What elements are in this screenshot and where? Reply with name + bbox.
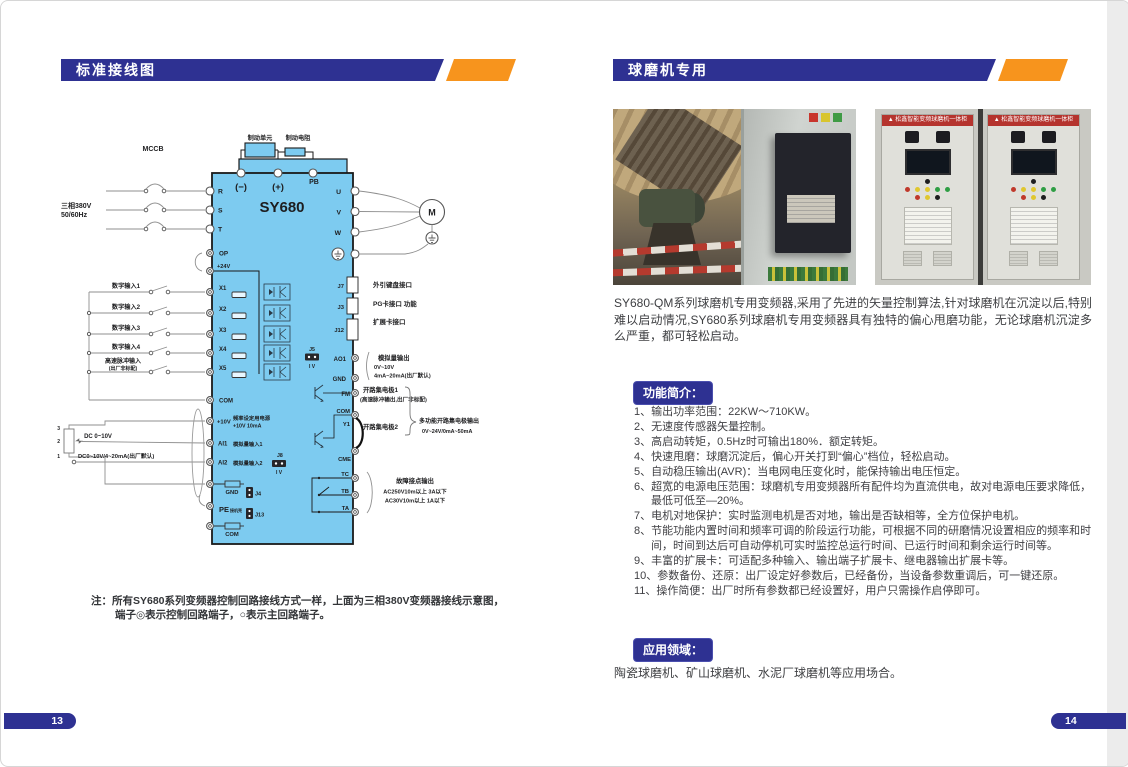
right-section-header: 球磨机专用 <box>613 59 1064 81</box>
ai2-source-label: DC0~10V/4~20mA(出厂默认) <box>78 452 154 460</box>
freq-power-spec: +10V 10mA <box>233 424 262 430</box>
note-line-2: 端子◎表示控制回路端子，○表示主回路端子。 <box>115 609 330 621</box>
support-pole <box>978 109 983 285</box>
feature-item: 5、自动稳压输出(AVR)：当电网电压变化时，能保持输出电压恒定。 <box>634 465 1094 480</box>
feature-item: 11、操作简便：出厂时所有参数都已经设置好，用户只需操作启停即可。 <box>634 584 1094 599</box>
digital-input-4-label: 数字输入4 <box>112 343 141 351</box>
feature-item: 6、超宽的电源电压范围：球磨机专用变频器所有配件均为直流供电，故对电源电压要求降… <box>634 480 1094 510</box>
terminal-label: S <box>218 208 223 215</box>
terminal-label: TC <box>341 472 350 478</box>
supply-frequency-label: 50/60Hz <box>61 212 88 219</box>
safety-railing <box>613 265 749 277</box>
wiring-bundle <box>768 267 848 281</box>
analog-input-1-label: 模拟量输入1 <box>233 440 262 448</box>
digital-input-3-label: 数字输入3 <box>112 324 141 332</box>
panel-meters <box>882 126 973 143</box>
terminal-label: +24V <box>217 264 230 270</box>
pe-note: 接机壳 <box>230 507 242 513</box>
feature-item: 8、节能功能内置时间和频率可调的阶段运行功能，可根据不同的研磨情况设置相应的频率… <box>634 524 1094 554</box>
analog-output-range2: 4mA~20mA(出厂默认) <box>374 372 431 380</box>
pb-terminal: PB <box>309 179 319 186</box>
fault-output-spec1: AC250V10m以上 3A以下 <box>383 488 447 496</box>
right-section-title-bar: 球磨机专用 <box>613 59 996 81</box>
vent-grilles <box>988 245 1079 266</box>
terminal-label: X3 <box>219 328 227 334</box>
terminal-label: R <box>218 189 223 196</box>
left-section-header: 标准接线图 <box>61 59 512 81</box>
pg-card-port-label: PG卡接口 功能 <box>373 299 417 308</box>
output-labels: 模拟量输出 0V~10V 4mA~20mA(出厂默认) 开路集电极1 (高速脉冲… <box>360 352 479 513</box>
terminal-label: CME <box>338 457 351 463</box>
header-orange-accent <box>998 59 1068 81</box>
spec-plate <box>1010 207 1058 245</box>
left-page-title: 标准接线图 <box>76 62 156 78</box>
indicator-lights <box>882 187 973 192</box>
open-collector-1-note: (高速脉冲输出,出厂非标配) <box>360 396 427 404</box>
analog-input-circuit: 3 2 1 DC 0~10V DC0~10V/4~20mA(出厂默认) <box>57 253 205 506</box>
terminal-label: OP <box>219 251 228 258</box>
terminal-label: TA <box>342 506 350 512</box>
digital-input-circuit: 数字输入1 数字输入2 数字输入3 数字输入4 高速脉冲输入 (出厂非标配) <box>87 282 205 400</box>
interface-labels: 外引键盘接口 PG卡接口 功能 扩展卡接口 <box>373 280 417 326</box>
ball-mill-photo <box>613 109 856 285</box>
brake-unit-label: 制动单元 <box>248 134 274 142</box>
left-section-title-bar: 标准接线图 <box>61 59 444 81</box>
jumper-label: J4 <box>255 492 262 498</box>
jumper-label: J13 <box>255 513 264 519</box>
indicator-lights <box>988 187 1079 192</box>
motor-circuit: M <box>359 191 445 254</box>
connector-label: J7 <box>338 284 344 290</box>
analog-input-2-label: 模拟量输入2 <box>233 459 262 467</box>
page-number-14: 14 <box>1051 713 1126 729</box>
connector-label: J12 <box>334 328 344 334</box>
terminal-label: X1 <box>219 286 227 292</box>
jumper-label: J5 <box>309 347 315 353</box>
terminal-label: GND <box>333 377 347 383</box>
digital-input-2-label: 数字输入2 <box>112 303 141 311</box>
spec-plate <box>904 207 952 245</box>
dc-plus-terminal: (+) <box>272 182 284 193</box>
vfd-unit <box>775 133 851 253</box>
intro-paragraph: SY680-QM系列球磨机专用变频器,采用了先进的矢量控制算法,针对球磨机在沉淀… <box>614 295 1092 345</box>
mccb-label: MCCB <box>143 146 164 153</box>
right-page-title: 球磨机专用 <box>628 62 708 78</box>
keypad-port-label: 外引键盘接口 <box>373 280 412 289</box>
cabinet-title: 松鑫智能变频球磨机一体柜 <box>988 115 1079 126</box>
panel-meters <box>988 126 1079 143</box>
control-cabinet: 松鑫智能变频球磨机一体柜 <box>987 114 1080 280</box>
pulse-input-label: 高速脉冲输入 <box>105 357 141 365</box>
note-line-1: 注：所有SY680系列变频器控制回路接线方式一样，上面为三相380V变频器接线示… <box>91 595 504 607</box>
brake-resistor-label: 制动电阻 <box>286 134 312 142</box>
motor-label: M <box>428 208 436 218</box>
terminal-label: COM <box>336 409 350 415</box>
pot-pin3-label: 3 <box>57 426 60 432</box>
pot-pin1-label: 1 <box>57 454 60 460</box>
control-cabinet: 松鑫智能变频球磨机一体柜 <box>881 114 974 280</box>
pulse-input-note: (出厂非标配) <box>109 365 138 372</box>
terminal-label: AI2 <box>218 461 228 467</box>
indicator-lights <box>882 179 973 184</box>
panel-display <box>1011 149 1057 175</box>
cabinet-title: 松鑫智能变频球磨机一体柜 <box>882 115 973 126</box>
pot-pin2-label: 2 <box>57 439 60 445</box>
panel-display <box>905 149 951 175</box>
terminal-label: COM <box>219 399 233 405</box>
terminal-label: V <box>336 210 341 217</box>
wiring-diagram: MCCB 三相380V 50/60Hz 数字输入1 数字输入2 数字输入3 数字… <box>56 126 556 631</box>
feature-item: 2、无速度传感器矢量控制。 <box>634 420 1094 435</box>
terminal-label: U <box>336 189 341 196</box>
indicator-lights <box>988 195 1079 200</box>
model-label: SY680 <box>259 199 304 216</box>
terminal-label: X5 <box>219 366 227 372</box>
manual-spread: 标准接线图 MCCB 三相380V 50/60Hz <box>0 0 1128 767</box>
page-number-13: 13 <box>4 713 76 729</box>
feature-item: 9、丰富的扩展卡：可适配多种输入、输出端子扩展卡、继电器输出扩展卡等。 <box>634 554 1094 569</box>
analog-output-label: 模拟量输出 <box>378 353 409 362</box>
fault-output-label: 故障接点输出 <box>396 476 434 485</box>
supply-voltage-label: 三相380V <box>61 201 92 210</box>
features-list: 1、输出功率范围：22KW～710KW。 2、无速度传感器矢量控制。 3、高启动… <box>634 405 1094 599</box>
application-fields-text: 陶瓷球磨机、矿山球磨机、水泥厂球磨机等应用场合。 <box>614 664 1084 681</box>
header-orange-accent <box>446 59 516 81</box>
expansion-port-label: 扩展卡接口 <box>373 317 406 326</box>
freq-power-label: 频率设定用电源 <box>233 414 271 422</box>
feature-item: 1、输出功率范围：22KW～710KW。 <box>634 405 1094 420</box>
jumper-label: J8 <box>277 453 283 459</box>
multi-output-label: 多功能开路集电极输出 <box>419 417 479 425</box>
input-supply-circuit: MCCB 三相380V 50/60Hz <box>61 146 205 231</box>
feature-item: 4、快速甩磨：球磨沉淀后，偏心开关打到“偏心”档位，轻松启动。 <box>634 450 1094 465</box>
digital-input-1-label: 数字输入1 <box>112 282 141 290</box>
terminal-label: Y1 <box>343 422 351 428</box>
fault-output-spec2: AC30V10m以上 1A以下 <box>385 497 446 505</box>
indicator-lights <box>988 179 1079 184</box>
wiring-note: 注：所有SY680系列变频器控制回路接线方式一样，上面为三相380V变频器接线示… <box>91 594 585 622</box>
pe-terminal-label: PE <box>219 505 229 514</box>
open-collector-1-label: 开路集电极1 <box>363 385 398 394</box>
terminal-label: X2 <box>219 307 227 313</box>
dc-minus-terminal: (−) <box>235 182 247 193</box>
cabinet-photo: 松鑫智能变频球磨机一体柜 松鑫智能变频球磨机一体柜 <box>875 109 1091 285</box>
jumper-iv-label: I V <box>309 364 316 370</box>
terminal-label: W <box>335 230 342 237</box>
fields-title-badge: 应用领域： <box>633 638 713 662</box>
terminal-label: TB <box>341 489 349 495</box>
feature-item: 7、电机对地保护：实时监测电机是否对地，输出是否缺相等，全方位保护电机。 <box>634 509 1094 524</box>
page-edge-shading <box>1107 1 1128 766</box>
dc-0-10v-label: DC 0~10V <box>84 434 112 440</box>
open-cabinet <box>741 109 856 285</box>
multi-output-range: 0V~24V/0mA~50mA <box>422 429 472 435</box>
com-label: COM <box>225 532 239 538</box>
terminal-blocks <box>809 113 842 122</box>
mill-scene <box>613 109 747 285</box>
vfd-nameplate <box>787 195 835 223</box>
terminal-label: AO1 <box>334 357 347 363</box>
indicator-lights <box>882 195 973 200</box>
feature-item: 10、参数备份、还原：出厂设定好参数后，已经备份，当设备参数重调后，可一键还原。 <box>634 569 1094 584</box>
terminal-label: +10V <box>217 420 231 426</box>
open-collector-2-label: 开路集电极2 <box>363 422 398 431</box>
jumper-iv-label: I V <box>276 470 283 476</box>
analog-output-range1: 0V~10V <box>374 365 394 371</box>
mill-motor <box>639 189 695 227</box>
gnd-label: GND <box>226 490 239 496</box>
terminal-label: X4 <box>219 347 227 353</box>
feature-item: 3、高启动转矩，0.5Hz时可输出180%．额定转矩。 <box>634 435 1094 450</box>
terminal-label: AI1 <box>218 442 228 448</box>
connector-label: J3 <box>338 305 345 311</box>
features-title-badge: 功能简介： <box>633 381 713 405</box>
vent-grilles <box>882 245 973 266</box>
